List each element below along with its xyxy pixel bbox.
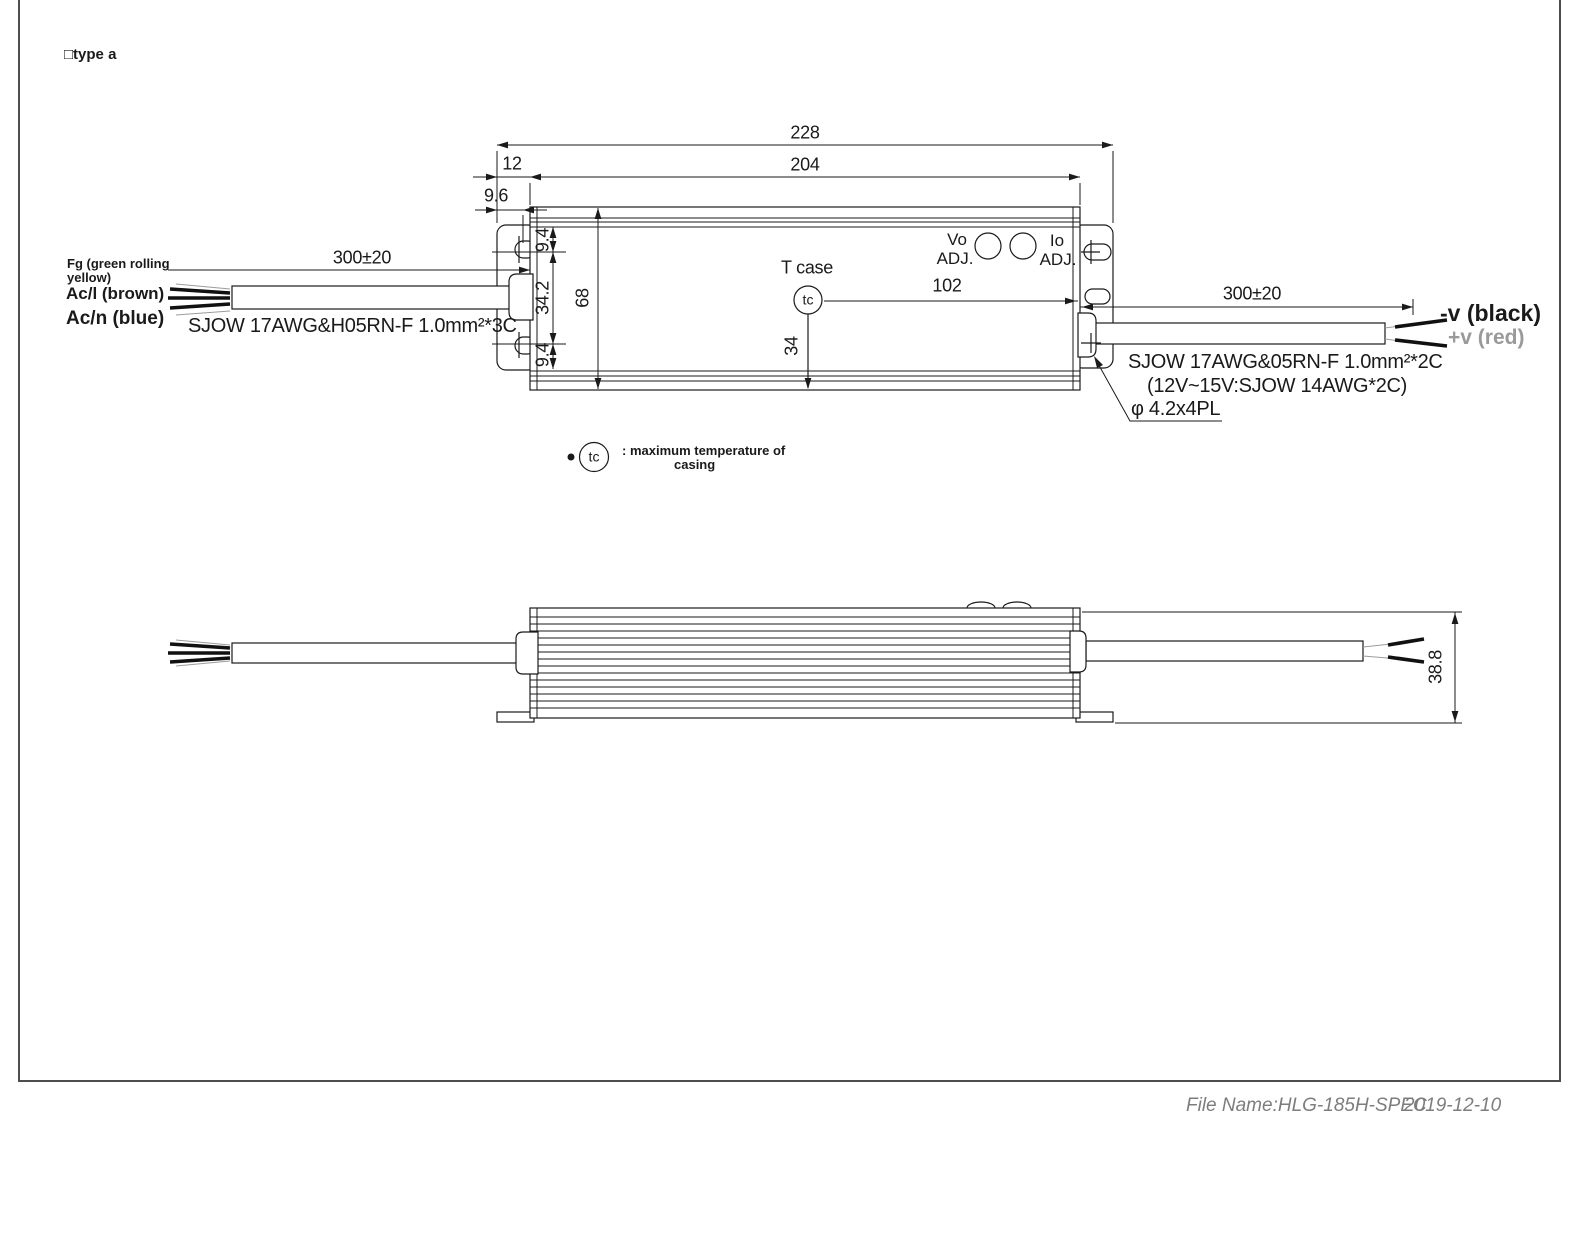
input-cable — [232, 286, 520, 309]
vo-label: Vo — [947, 231, 967, 249]
dim-tc-horizontal: 102 — [932, 277, 961, 296]
right-bracket-foot — [1076, 712, 1113, 722]
dim-mounting-hole: φ 4.2x4PL — [1131, 399, 1220, 420]
output-cable-side — [1086, 641, 1363, 661]
input-cable-spec: SJOW 17AWG&H05RN-F 1.0mm²*3C — [188, 316, 517, 337]
fg-wire-label-line2: yellow) — [67, 271, 111, 285]
ac-l-wire-label: Ac/l (brown) — [66, 285, 164, 303]
drawing-line-art — [0, 0, 1580, 1250]
dim-bracket-offset: 12 — [502, 155, 521, 174]
dim-output-cable-length: 300±20 — [1223, 285, 1281, 304]
output-cable-spec: SJOW 17AWG&05RN-F 1.0mm²*2C — [1128, 352, 1443, 373]
output-wire-strands-side — [1363, 639, 1424, 662]
output-cable-note: (12V~15V:SJOW 14AWG*2C) — [1147, 376, 1407, 397]
dim-body-length: 204 — [790, 156, 819, 175]
io-label: Io — [1050, 232, 1064, 250]
fg-wire-label-line1: Fg (green rolling — [67, 257, 170, 271]
output-cable — [1094, 323, 1385, 344]
ac-n-wire-label: Ac/n (blue) — [66, 309, 164, 329]
height-dimension — [1082, 612, 1462, 723]
footer-date: 2019-12-10 — [1404, 1096, 1501, 1116]
positive-wire-label: +v (red) — [1448, 327, 1524, 349]
tc-point-label: tc — [803, 293, 814, 308]
right-oval-slot — [1085, 289, 1110, 304]
legend-bullet — [568, 454, 575, 461]
dim-overall-length: 228 — [790, 124, 819, 143]
dim-slot-span: 34.2 — [534, 281, 553, 315]
output-gland-side — [1070, 631, 1086, 672]
legend-text-line1: : maximum temperature of — [622, 444, 785, 458]
dim-input-cable-length: 300±20 — [333, 249, 391, 268]
dim-slot-offset: 9.6 — [484, 187, 508, 206]
dim-tc-vertical: 34 — [783, 336, 802, 355]
output-cable-gland — [1078, 313, 1096, 357]
legend-text-line2: casing — [674, 458, 715, 472]
input-wire-strands-side — [168, 640, 230, 666]
type-label: □type a — [64, 47, 116, 63]
io-adj-pot — [1010, 233, 1036, 259]
vo-adj-pot — [975, 233, 1001, 259]
io-adj-label: ADJ. — [1040, 251, 1077, 269]
input-cable-side — [232, 643, 518, 663]
negative-wire-label: -v (black) — [1440, 301, 1541, 325]
vo-adj-label: ADJ. — [937, 250, 974, 268]
input-cable-gland — [509, 274, 533, 320]
dim-slot-top: 9.4 — [534, 228, 553, 252]
t-case-label: T case — [781, 259, 833, 278]
footer-file-name: File Name:HLG-185H-SPEC — [1186, 1096, 1427, 1116]
input-wire-strands — [168, 284, 230, 315]
left-bracket-foot — [497, 712, 534, 722]
legend-tc-label: tc — [589, 450, 600, 465]
output-wire-strands — [1385, 320, 1447, 346]
dim-body-width: 68 — [574, 288, 593, 307]
input-gland-side — [516, 632, 538, 674]
dim-height: 38.8 — [1427, 650, 1446, 684]
adj-cover-bumps — [967, 602, 1031, 608]
spec-drawing-page: □type a 228 204 12 9.6 300±20 9.4 34.2 9… — [0, 0, 1580, 1250]
dim-slot-bottom: 9.4 — [534, 343, 553, 367]
